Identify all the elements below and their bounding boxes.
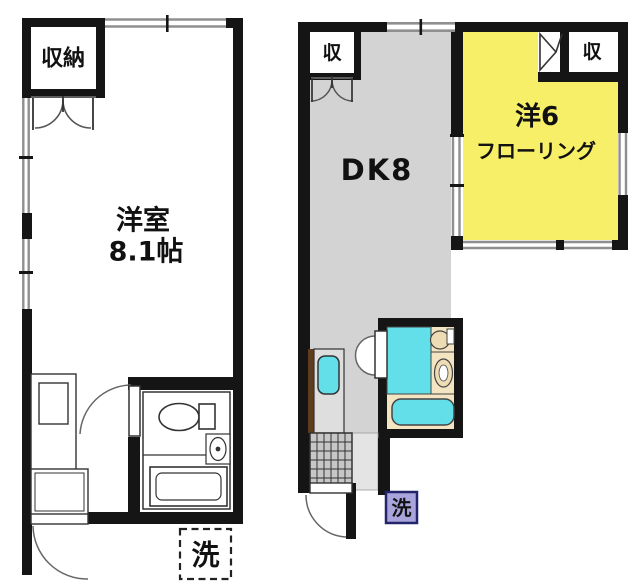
window-tick xyxy=(19,156,33,159)
closet-a-label: 収 xyxy=(322,42,342,64)
closet-label: 収納 xyxy=(41,46,85,72)
toilet-tank-icon xyxy=(199,404,215,429)
wall-pier xyxy=(22,213,32,239)
window-tick xyxy=(420,19,423,35)
left-unit-plan: 収納 洋室 8.1帖 洗 xyxy=(19,15,243,579)
cabinet-unit xyxy=(31,469,88,515)
closet-b-bottom-wall xyxy=(538,72,628,82)
ubath-wall-right xyxy=(454,318,463,438)
closet-door-leaves xyxy=(33,96,93,130)
partition-wall-stub xyxy=(451,236,463,250)
bathroom-door-leaf xyxy=(129,386,140,436)
ubath-door-leaf xyxy=(375,331,387,378)
window-left xyxy=(23,97,28,309)
closet-b-label: 収 xyxy=(582,41,602,63)
ubath-wall-top xyxy=(378,318,463,327)
room-size-label: 8.1帖 xyxy=(109,237,184,268)
yellow-room-name: 洋6 xyxy=(515,101,559,132)
laundry-label: 洗 xyxy=(392,496,412,520)
laundry-label: 洗 xyxy=(191,539,219,572)
yellow-room-floor-label: フローリング xyxy=(476,139,596,163)
window-tick xyxy=(166,15,169,32)
entry-side-wall xyxy=(378,438,390,495)
floor-plan-canvas: 収納 洋室 8.1帖 洗 xyxy=(0,0,640,584)
shower-floor xyxy=(387,327,431,394)
toilet-tank-icon xyxy=(447,329,454,344)
bathroom-wall-top xyxy=(128,377,243,390)
entrance-door-arc xyxy=(306,495,346,537)
right-unit-plan: 収 収 DK8 洋6 フローリング xyxy=(298,19,628,539)
kitchen-sink-icon xyxy=(39,383,68,424)
entrance-door-leaf xyxy=(31,514,88,524)
entrance-door-leaf xyxy=(310,483,352,493)
bathroom-wall-left xyxy=(128,437,140,512)
ubath-wall-bottom xyxy=(378,429,463,438)
counter-edge xyxy=(308,349,314,433)
room-name-label: 洋室 xyxy=(116,205,170,237)
window-tick xyxy=(19,271,33,274)
floor-plan-image: 収納 洋室 8.1帖 洗 xyxy=(0,0,640,584)
entry-step xyxy=(352,433,378,490)
bathroom-door-arc xyxy=(80,385,131,434)
dk-label: DK8 xyxy=(341,153,414,187)
bathtub-icon xyxy=(392,399,454,425)
wall-bottom xyxy=(83,512,243,524)
partition-wall-upper xyxy=(451,32,463,136)
kitchen-sink-icon xyxy=(318,356,339,394)
sliding-door-tick xyxy=(450,134,464,137)
washbasin-bowl xyxy=(439,365,448,381)
ubath-wall-left-bottom xyxy=(378,376,387,438)
washbasin-drain xyxy=(216,447,221,452)
sliding-door-tick xyxy=(450,184,464,187)
toilet-icon xyxy=(159,404,199,431)
entrance-door-arc xyxy=(33,526,88,579)
wall-right xyxy=(233,18,243,524)
wall-top-right-seg xyxy=(455,22,628,32)
